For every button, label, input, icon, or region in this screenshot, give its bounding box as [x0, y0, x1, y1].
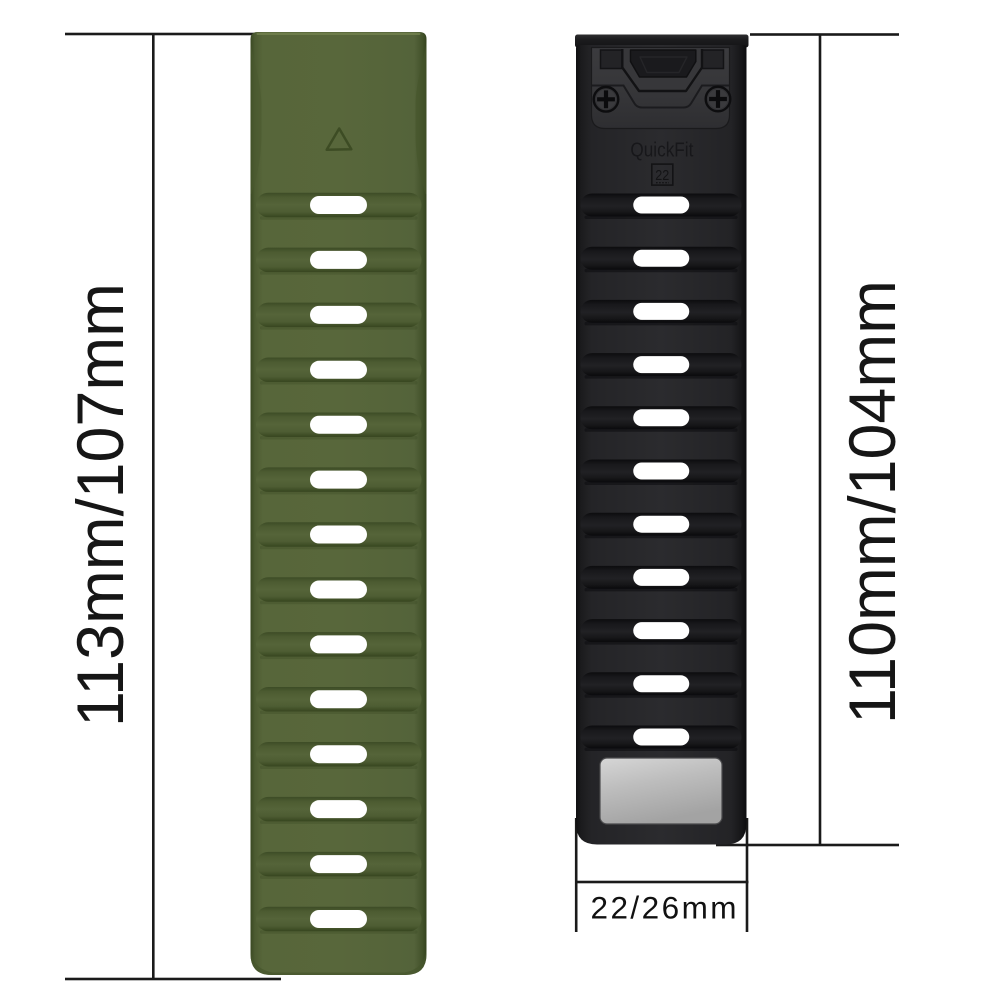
svg-text:110mm/104mm: 110mm/104mm — [835, 280, 909, 724]
svg-text:22/26mm: 22/26mm — [591, 890, 737, 926]
svg-text:22: 22 — [655, 168, 669, 184]
svg-text:QuickFit: QuickFit — [630, 140, 693, 162]
svg-text:113mm/107mm: 113mm/107mm — [63, 283, 137, 727]
